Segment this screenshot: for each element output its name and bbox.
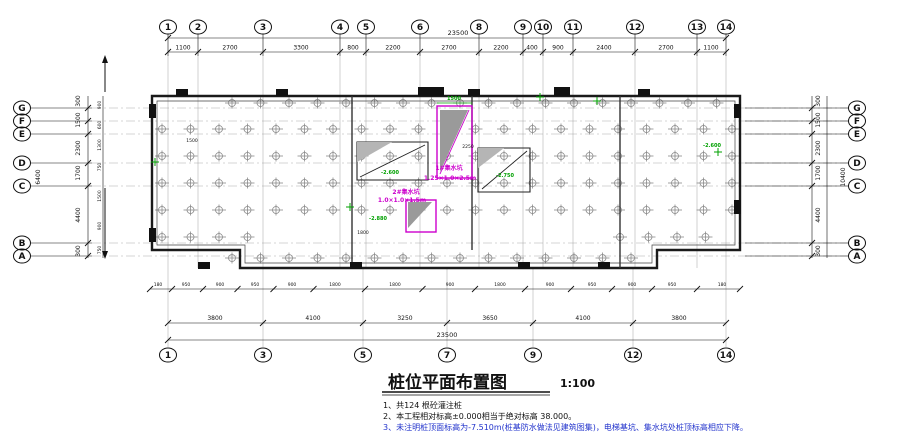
- bottom-total-dimension: 23500: [437, 331, 458, 339]
- pile-symbol: [339, 253, 353, 264]
- pile-symbol: [526, 205, 540, 216]
- pile-symbol: [699, 232, 713, 243]
- pile-symbol: [368, 98, 382, 109]
- bottom-dim-label: 3650: [482, 315, 497, 322]
- pile-symbol: [282, 98, 296, 109]
- bottom-small-dim-label: 900: [446, 282, 455, 288]
- grid-bubble-top-12-label: 12: [629, 23, 642, 33]
- bottom-small-dim-label: 1800: [494, 282, 506, 288]
- pile-symbol: [326, 124, 340, 135]
- grid-bubble-left-F-label: F: [19, 117, 25, 127]
- sump-pit-label: 2#集水坑: [392, 188, 419, 196]
- bottom-small-dim-label: 950: [251, 282, 260, 288]
- left-inner-dim-label: 1300: [97, 139, 103, 151]
- pile-symbol: [668, 178, 682, 189]
- grid-bubble-bottom-1-label: 1: [165, 351, 171, 361]
- grid-bubble-left-B-label: B: [19, 239, 26, 249]
- drawing-title: 桩位平面布置图: [388, 372, 507, 393]
- elevation-label: -2.600: [703, 143, 721, 149]
- left-inner-dim-label: 750: [97, 246, 103, 255]
- grid-bubble-right-B-label: B: [854, 239, 861, 249]
- pile-symbol: [469, 205, 483, 216]
- pile-symbol: [254, 253, 268, 264]
- grid-bubble-top-1-label: 1: [165, 23, 171, 33]
- pile-symbol: [596, 253, 610, 264]
- pile-symbol: [269, 151, 283, 162]
- left-dim-label: 4400: [75, 207, 82, 222]
- pile-symbol: [184, 178, 198, 189]
- bottom-small-dim-label: 180: [718, 282, 727, 288]
- pile-symbol: [554, 124, 568, 135]
- right-dim-label: 1500: [815, 112, 822, 127]
- detail-dim-label: 2250: [462, 144, 474, 150]
- top-dim-label: 2200: [493, 45, 508, 52]
- note-1: 1、共124 根砼灌注桩: [383, 400, 462, 410]
- grid-bubble-top-5-label: 5: [363, 23, 369, 33]
- grid-bubble-top-10-label: 10: [537, 23, 550, 33]
- pile-symbol: [583, 205, 597, 216]
- right-dim-label: 300: [815, 95, 822, 107]
- pile-symbol: [212, 178, 226, 189]
- pile-symbol: [653, 98, 667, 109]
- pile-symbol: [640, 124, 654, 135]
- pile-symbol: [668, 124, 682, 135]
- bottom-dim-label: 3250: [397, 315, 412, 322]
- top-dim-label: 800: [347, 45, 359, 52]
- left-dim-label: 300: [75, 245, 82, 257]
- grid-bubble-top-14-label: 14: [720, 23, 733, 33]
- pile-plan-drawing: 3001500230017004400300300150023001700440…: [0, 0, 900, 446]
- top-dim-label: 2700: [222, 45, 237, 52]
- grid-bubble-left-D-label: D: [18, 159, 25, 169]
- grid-bubble-top-11-label: 11: [567, 23, 580, 33]
- grid-bubble-left-A-label: A: [19, 252, 26, 262]
- pile-symbol: [526, 151, 540, 162]
- dimension-layer: 3001500230017004400300300150023001700440…: [75, 35, 827, 343]
- pile-symbol: [567, 98, 581, 109]
- note-3: 3、未注明桩顶面标高为-7.510m(桩基防水做法见建筑图集)，电梯基坑、集水坑…: [383, 422, 748, 432]
- pile-symbol: [184, 232, 198, 243]
- number-grid-lines: [168, 34, 726, 347]
- sump-pit-label: 1#集水坑: [435, 164, 462, 172]
- pile-symbol: [241, 205, 255, 216]
- pile-symbol: [184, 124, 198, 135]
- pile-symbol: [269, 178, 283, 189]
- pile-symbol: [640, 205, 654, 216]
- pile-symbol: [554, 178, 568, 189]
- pile-symbol: [697, 178, 711, 189]
- top-dim-label: 2200: [385, 45, 400, 52]
- note-2: 2、本工程相对标高±0.000相当于绝对标高 38.000。: [383, 411, 576, 421]
- pile-symbol: [624, 98, 638, 109]
- pile-symbol: [368, 253, 382, 264]
- right-dim-label: 300: [815, 245, 822, 257]
- top-dim-label: 2700: [441, 45, 456, 52]
- pile-symbol: [583, 124, 597, 135]
- grid-bubble-top-13-label: 13: [691, 23, 704, 33]
- pile-symbol: [668, 205, 682, 216]
- bottom-small-dim-label: 1800: [329, 282, 341, 288]
- pile-symbol: [241, 232, 255, 243]
- bottom-small-dim-label: 180: [154, 282, 163, 288]
- pile-symbol: [254, 98, 268, 109]
- pile-symbol: [326, 151, 340, 162]
- bottom-small-dim-label: 950: [588, 282, 597, 288]
- grid-bubble-right-A-label: A: [854, 252, 861, 262]
- left-dim-label: 2300: [75, 140, 82, 155]
- elevation-label: 1500: [447, 96, 461, 102]
- bottom-small-dim-label: 900: [628, 282, 637, 288]
- left-overall-dimension: 6400: [35, 169, 42, 184]
- pile-symbol: [225, 253, 239, 264]
- pile-symbol: [412, 124, 426, 135]
- pile-symbol: [611, 178, 625, 189]
- bottom-small-dim-label: 1800: [389, 282, 401, 288]
- pile-symbol: [396, 98, 410, 109]
- elevation-label: -2.750: [496, 173, 514, 179]
- bottom-small-dim-label: 900: [216, 282, 225, 288]
- bottom-small-dim-label: 950: [668, 282, 677, 288]
- pile-symbol: [611, 151, 625, 162]
- pile-symbol: [539, 98, 553, 109]
- pile-symbol: [697, 151, 711, 162]
- right-dim-label: 2300: [815, 140, 822, 155]
- elevation-label: -2.880: [369, 216, 387, 222]
- grid-bubble-left-E-label: E: [19, 130, 25, 140]
- bottom-dim-label: 3800: [207, 315, 222, 322]
- pile-symbol: [383, 124, 397, 135]
- bottom-dim-label: 4100: [305, 315, 320, 322]
- pile-symbol: [241, 124, 255, 135]
- pile-symbol: [212, 205, 226, 216]
- pile-symbol: [241, 178, 255, 189]
- pile-symbol: [510, 253, 524, 264]
- left-inner-dim-label: 1500: [97, 190, 103, 202]
- pile-symbol: [611, 124, 625, 135]
- pile-symbol: [469, 124, 483, 135]
- top-dim-label: 2400: [596, 45, 611, 52]
- grid-bubble-right-C-label: C: [854, 182, 861, 192]
- grid-bubble-top-4-label: 4: [337, 23, 343, 33]
- pile-symbol: [269, 124, 283, 135]
- arrow-head: [102, 55, 108, 63]
- pile-symbol: [184, 205, 198, 216]
- left-inner-dim-label: 750: [97, 163, 103, 172]
- pile-symbol: [554, 205, 568, 216]
- pile-symbol: [497, 151, 511, 162]
- pile-symbol: [298, 151, 312, 162]
- pile-symbol: [725, 124, 739, 135]
- pile-symbol: [396, 253, 410, 264]
- pile-symbol: [482, 253, 496, 264]
- pile-symbol: [355, 205, 369, 216]
- top-dim-label: 1100: [175, 45, 190, 52]
- grid-bubble-right-D-label: D: [853, 159, 860, 169]
- grid-bubble-bottom-14-label: 14: [720, 351, 733, 361]
- grid-bubble-right-F-label: F: [854, 117, 860, 127]
- pile-symbol: [640, 151, 654, 162]
- left-inner-dim-label: 900: [97, 222, 103, 231]
- top-dim-label: 2700: [658, 45, 673, 52]
- pile-symbol: [241, 151, 255, 162]
- grid-bubble-bottom-12-label: 12: [627, 351, 640, 361]
- pile-symbol: [681, 98, 695, 109]
- pile-symbol: [326, 178, 340, 189]
- pile-symbol: [710, 98, 724, 109]
- top-dim-label: 1100: [703, 45, 718, 52]
- right-dim-label: 1700: [815, 165, 822, 180]
- pile-symbol: [624, 253, 638, 264]
- bottom-small-dim-label: 900: [288, 282, 297, 288]
- right-dim-label: 4400: [815, 207, 822, 222]
- pile-symbol: [725, 178, 739, 189]
- pile-symbol: [383, 205, 397, 216]
- top-total-dimension: 23500: [448, 29, 469, 37]
- grid-bubble-right-E-label: E: [854, 130, 860, 140]
- grid-bubble-top-6-label: 6: [417, 23, 423, 33]
- pile-symbol: [668, 151, 682, 162]
- detail-dim-label: 1500: [186, 138, 198, 144]
- pile-symbol: [583, 151, 597, 162]
- pile-symbol: [298, 178, 312, 189]
- detail-dim-label: 1800: [357, 230, 369, 236]
- pile-symbol: [326, 205, 340, 216]
- bottom-small-dim-label: 900: [546, 282, 555, 288]
- grid-bubble-top-8-label: 8: [476, 23, 482, 33]
- stair-pit-right-shade: [478, 148, 504, 168]
- pile-symbol: [497, 124, 511, 135]
- pile-symbol: [642, 232, 656, 243]
- pile-symbol: [425, 253, 439, 264]
- grid-bubble-left-C-label: C: [19, 182, 26, 192]
- grid-bubble-right-G-label: G: [853, 104, 860, 114]
- right-overall-dimension: 10400: [840, 167, 847, 186]
- pile-symbol: [184, 151, 198, 162]
- pile-symbol: [596, 98, 610, 109]
- pile-symbol: [440, 205, 454, 216]
- pile-symbol: [697, 124, 711, 135]
- pile-symbol: [670, 232, 684, 243]
- grid-bubble-bottom-7-label: 7: [444, 351, 450, 361]
- pile-symbol: [526, 178, 540, 189]
- sump-pit-label: 1.25×1.0×2.5m: [424, 175, 476, 182]
- left-dim-label: 1700: [75, 165, 82, 180]
- pile-symbol: [383, 178, 397, 189]
- pile-symbol: [355, 124, 369, 135]
- pile-symbol: [212, 232, 226, 243]
- sump-pit-1-shade: [440, 110, 468, 172]
- top-dim-label: 400: [526, 45, 538, 52]
- pile-symbol: [497, 205, 511, 216]
- pile-symbol: [311, 253, 325, 264]
- grid-bubble-bottom-3-label: 3: [260, 351, 266, 361]
- pile-symbol: [583, 178, 597, 189]
- left-inner-dim-label: 900: [97, 101, 103, 110]
- pile-symbol: [298, 205, 312, 216]
- pile-symbol: [482, 98, 496, 109]
- bottom-small-dim-label: 950: [182, 282, 191, 288]
- pile-symbol: [212, 124, 226, 135]
- pile-symbol: [697, 205, 711, 216]
- grid-bubble-top-3-label: 3: [260, 23, 266, 33]
- pile-symbol: [725, 151, 739, 162]
- axis-bubble-layer: GGFFEEDDCCBBAA12345689101112131413579121…: [14, 20, 866, 362]
- pile-symbol: [282, 253, 296, 264]
- grid-bubble-top-2-label: 2: [195, 23, 201, 33]
- sump-pit-label: 1.0×1.0×1.5m: [378, 197, 426, 204]
- bottom-dim-label: 3800: [671, 315, 686, 322]
- bottom-dim-label: 4100: [575, 315, 590, 322]
- pile-symbol: [298, 124, 312, 135]
- elevation-label: -2.600: [381, 170, 399, 176]
- pile-symbol: [539, 253, 553, 264]
- pile-symbol: [567, 253, 581, 264]
- pile-symbol: [640, 178, 654, 189]
- left-dim-label: 300: [75, 95, 82, 107]
- pile-symbol: [225, 98, 239, 109]
- left-dim-label: 1500: [75, 112, 82, 127]
- pile-symbol: [554, 151, 568, 162]
- pile-symbol: [453, 253, 467, 264]
- pile-symbol: [212, 151, 226, 162]
- stair-pit-left-shade: [357, 142, 392, 162]
- pile-symbol: [526, 124, 540, 135]
- grid-bubble-bottom-9-label: 9: [530, 351, 536, 361]
- pile-symbol: [269, 205, 283, 216]
- left-inner-dim-label: 600: [97, 121, 103, 130]
- grid-bubble-left-G-label: G: [18, 104, 25, 114]
- grid-bubble-top-9-label: 9: [520, 23, 526, 33]
- pile-symbol: [412, 151, 426, 162]
- pile-symbol: [611, 205, 625, 216]
- top-dim-label: 900: [552, 45, 564, 52]
- top-dim-label: 3300: [293, 45, 308, 52]
- pile-symbol: [339, 98, 353, 109]
- drawing-scale: 1:100: [560, 377, 595, 390]
- pile-symbol: [510, 98, 524, 109]
- pile-plan-sheet: 3001500230017004400300300150023001700440…: [0, 0, 900, 446]
- grid-bubble-bottom-5-label: 5: [360, 351, 366, 361]
- pile-symbol: [497, 178, 511, 189]
- pile-symbol: [311, 98, 325, 109]
